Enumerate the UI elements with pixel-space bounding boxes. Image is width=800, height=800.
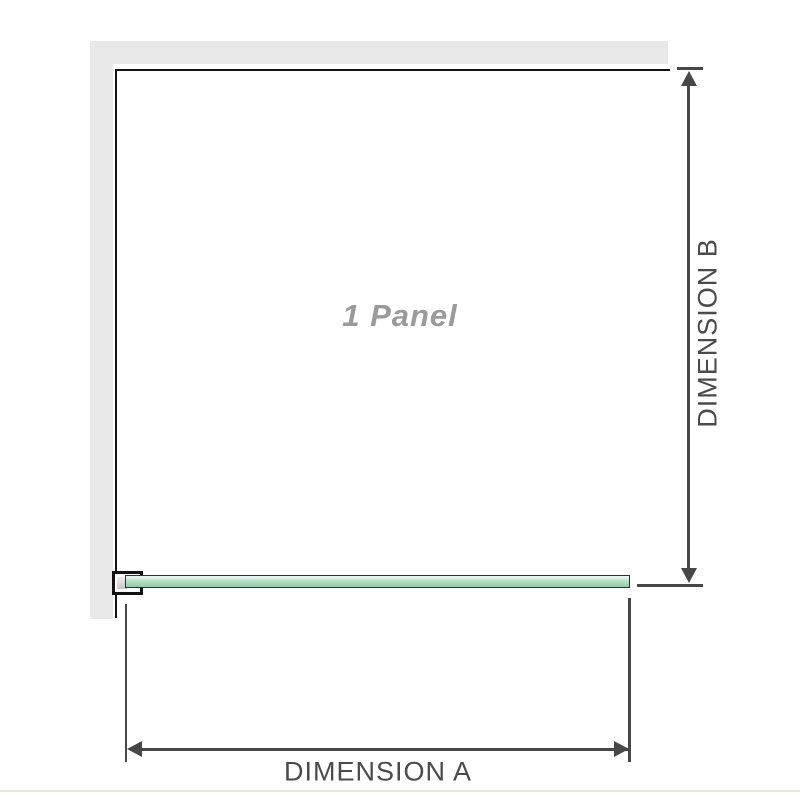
dimension-b-arrow-down-icon [681,568,697,583]
dimension-b-bottom-tick [637,584,703,587]
panel-outline-left-edge [115,69,117,618]
dimension-a-right-extension-line [628,598,631,762]
dimension-b-top-tick [677,67,703,70]
wall-left-band [90,41,113,619]
dimension-a-line [130,748,628,751]
dimension-b-label: DIMENSION B [693,238,724,428]
dimension-b-line [687,78,690,578]
dimension-a-arrow-right-icon [614,741,629,757]
shower-panel-dimension-diagram: 1 Panel DIMENSION B DIMENSION A [0,0,800,800]
wall-top-band [90,41,668,64]
dimension-a-arrow-left-icon [127,741,142,757]
glass-panel-bar [125,575,630,588]
panel-outline-top-edge [115,69,670,71]
dimension-a-left-extension-line [125,604,127,762]
dimension-b-arrow-up-icon [681,71,697,86]
page-baseline-divider [0,790,800,792]
dimension-a-label: DIMENSION A [284,757,472,788]
panel-count-label: 1 Panel [342,298,458,334]
